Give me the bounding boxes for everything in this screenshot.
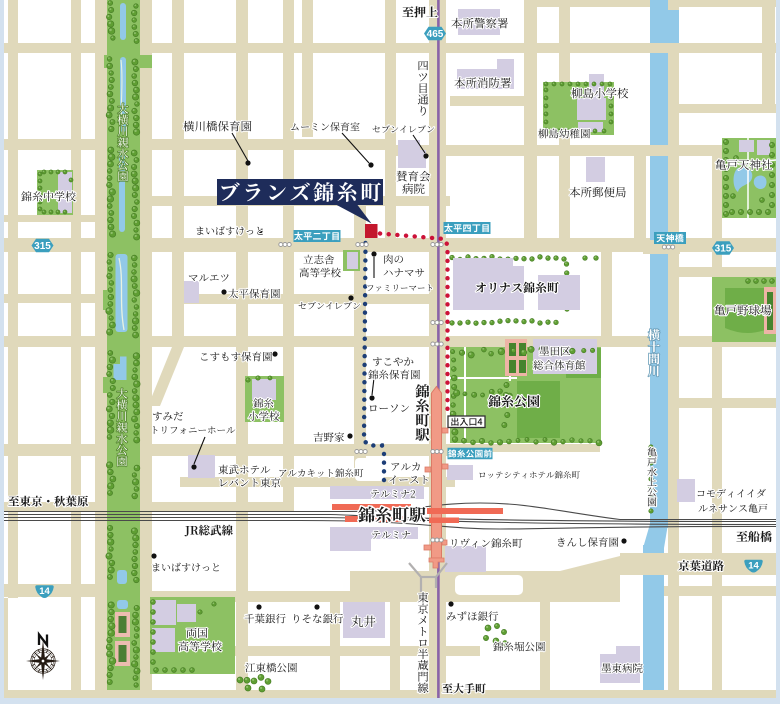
svg-text:315: 315 xyxy=(715,244,732,255)
svg-text:315: 315 xyxy=(34,241,51,252)
svg-text:14: 14 xyxy=(748,561,759,572)
svg-text:465: 465 xyxy=(427,29,444,40)
svg-text:14: 14 xyxy=(39,586,50,597)
